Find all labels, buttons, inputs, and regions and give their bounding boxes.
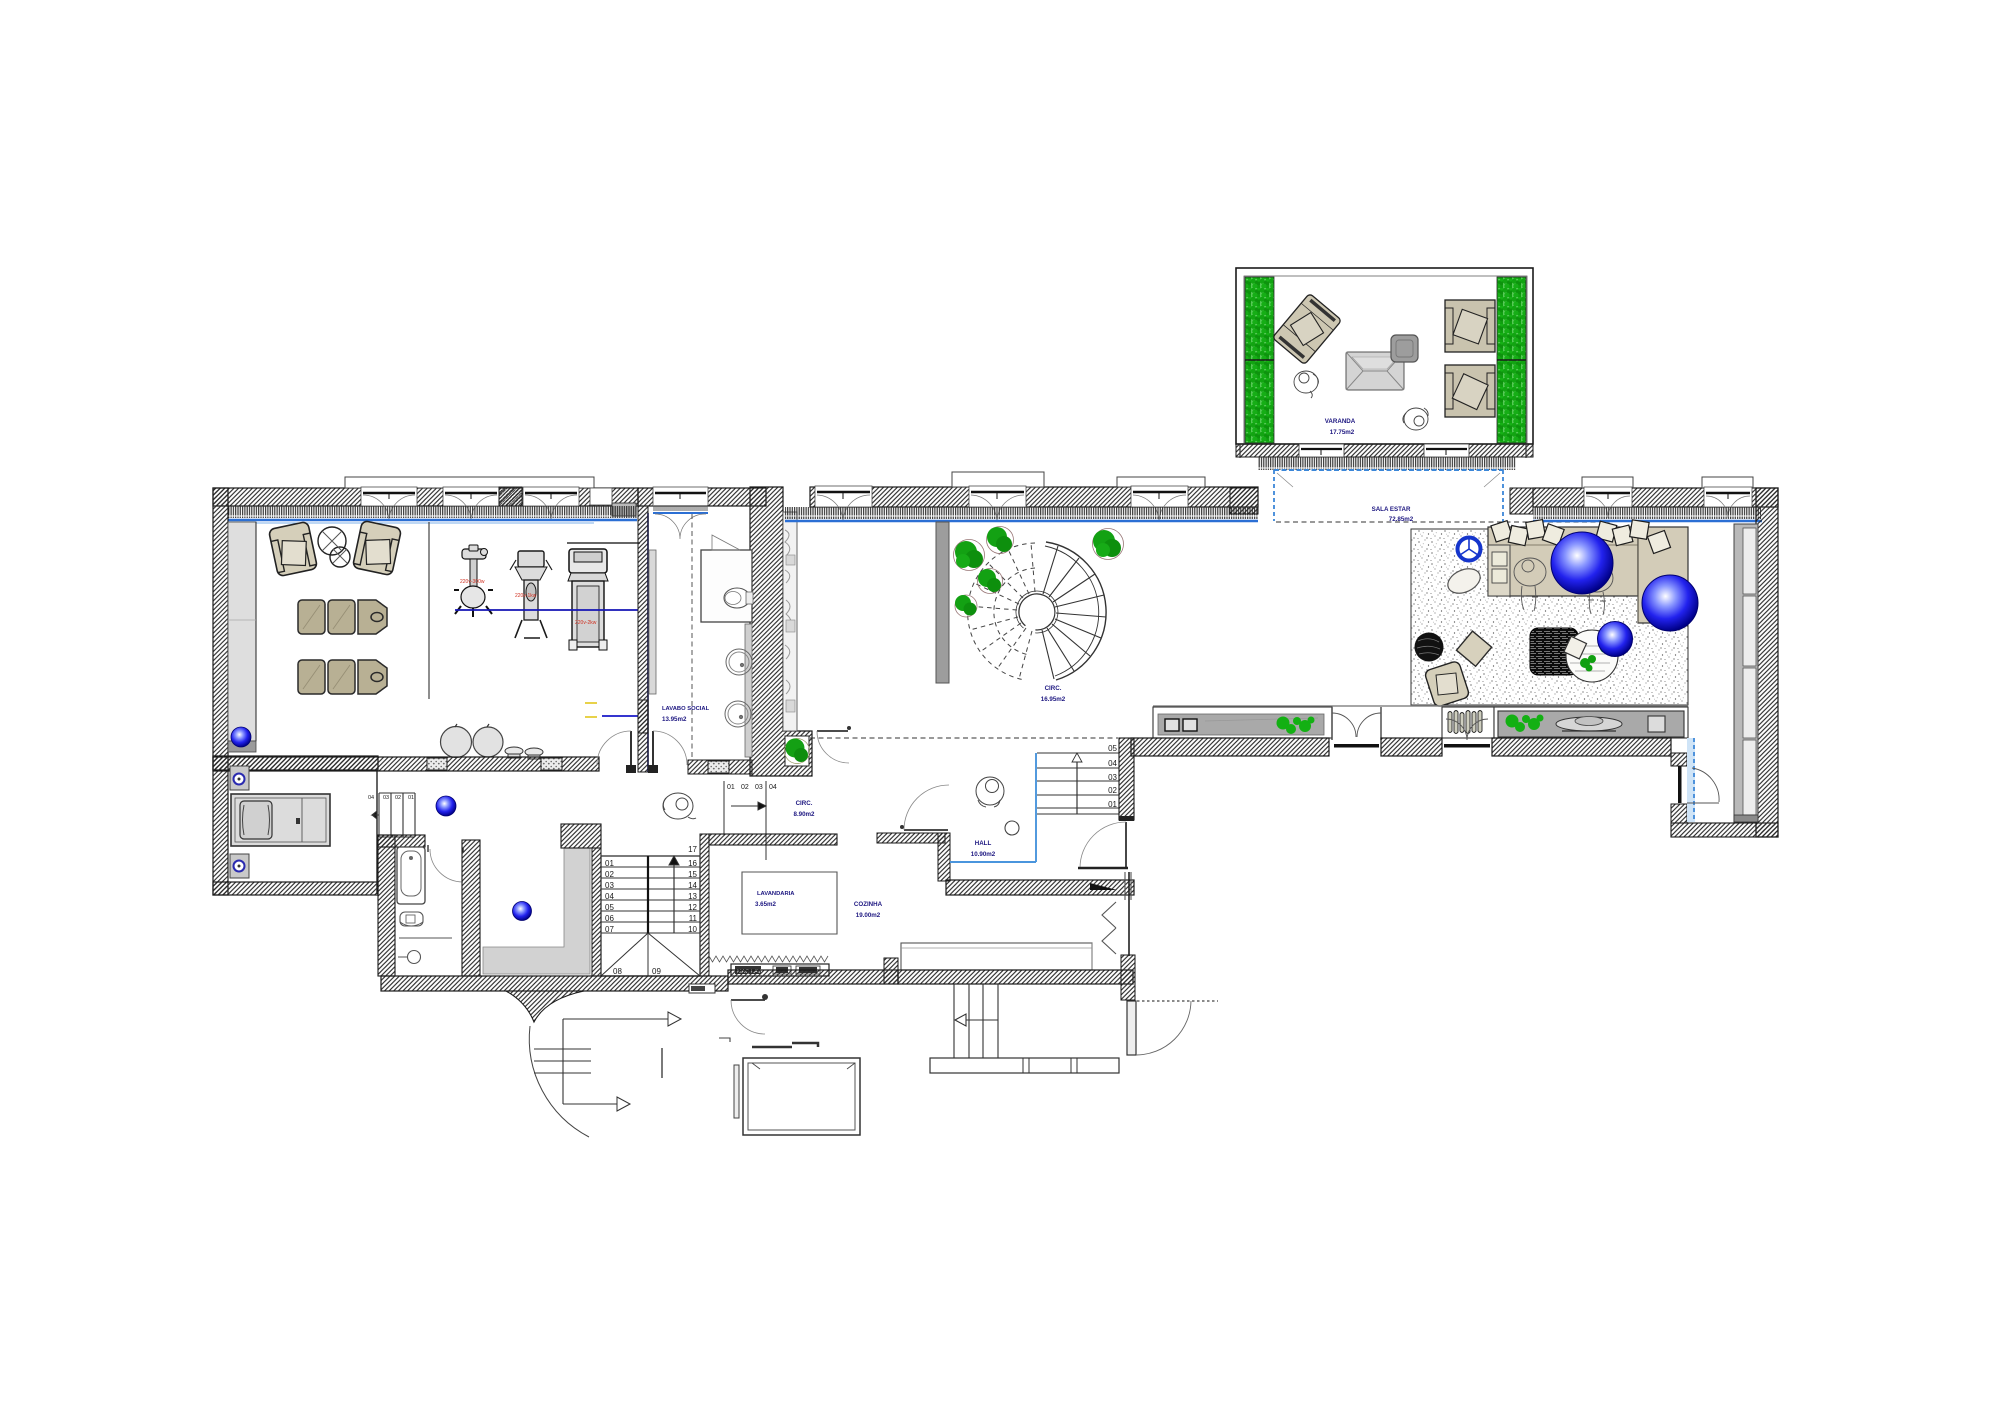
svg-text:SALA ESTAR: SALA ESTAR <box>1372 506 1411 513</box>
svg-text:02: 02 <box>605 870 614 879</box>
svg-text:11: 11 <box>689 914 698 923</box>
svg-text:16: 16 <box>688 859 697 868</box>
svg-text:19.00m2: 19.00m2 <box>856 912 881 919</box>
svg-text:LAVANDARIA: LAVANDARIA <box>757 891 795 897</box>
svg-text:04: 04 <box>769 784 777 791</box>
svg-text:3.65m2: 3.65m2 <box>755 901 777 908</box>
svg-text:03: 03 <box>1108 773 1117 782</box>
svg-text:04: 04 <box>1108 759 1117 768</box>
svg-text:220v-300w: 220v-300w <box>460 579 485 585</box>
svg-text:220v-1kw: 220v-1kw <box>515 593 537 599</box>
svg-text:03: 03 <box>755 784 763 791</box>
svg-text:08: 08 <box>613 967 622 976</box>
svg-text:04: 04 <box>605 892 614 901</box>
svg-text:01: 01 <box>605 859 614 868</box>
svg-text:13: 13 <box>688 892 697 901</box>
svg-text:01: 01 <box>1108 800 1117 809</box>
svg-text:COZINHA: COZINHA <box>854 901 883 908</box>
svg-text:220v-2kw: 220v-2kw <box>575 620 597 626</box>
svg-text:10.90m2: 10.90m2 <box>971 851 996 858</box>
svg-text:01: 01 <box>408 795 414 801</box>
svg-text:14: 14 <box>688 881 697 890</box>
svg-text:02: 02 <box>1108 786 1117 795</box>
svg-text:16.95m2: 16.95m2 <box>1041 696 1066 703</box>
svg-text:13.95m2: 13.95m2 <box>662 716 687 723</box>
svg-text:09: 09 <box>652 967 661 976</box>
svg-text:VARANDA: VARANDA <box>1325 418 1356 425</box>
svg-text:8.90m2: 8.90m2 <box>794 811 816 818</box>
svg-text:17.75m2: 17.75m2 <box>1330 429 1355 436</box>
svg-text:LAVABO SOCIAL: LAVABO SOCIAL <box>662 706 710 712</box>
svg-text:05: 05 <box>605 903 614 912</box>
svg-text:10: 10 <box>688 925 697 934</box>
svg-text:03: 03 <box>383 795 389 801</box>
svg-text:72.85m2: 72.85m2 <box>1389 516 1414 523</box>
svg-text:03: 03 <box>605 881 614 890</box>
svg-text:CIRC.: CIRC. <box>1045 685 1062 692</box>
svg-text:04: 04 <box>368 795 374 801</box>
svg-text:02: 02 <box>741 784 749 791</box>
svg-text:01: 01 <box>727 784 735 791</box>
svg-text:CIRC.: CIRC. <box>796 800 813 807</box>
svg-text:07: 07 <box>605 925 614 934</box>
svg-text:05: 05 <box>1108 744 1117 753</box>
svg-text:02: 02 <box>395 795 401 801</box>
svg-text:06: 06 <box>605 914 614 923</box>
svg-text:HALL: HALL <box>975 840 992 847</box>
svg-text:15: 15 <box>688 870 697 879</box>
svg-text:12: 12 <box>688 903 697 912</box>
svg-text:17: 17 <box>688 845 697 854</box>
